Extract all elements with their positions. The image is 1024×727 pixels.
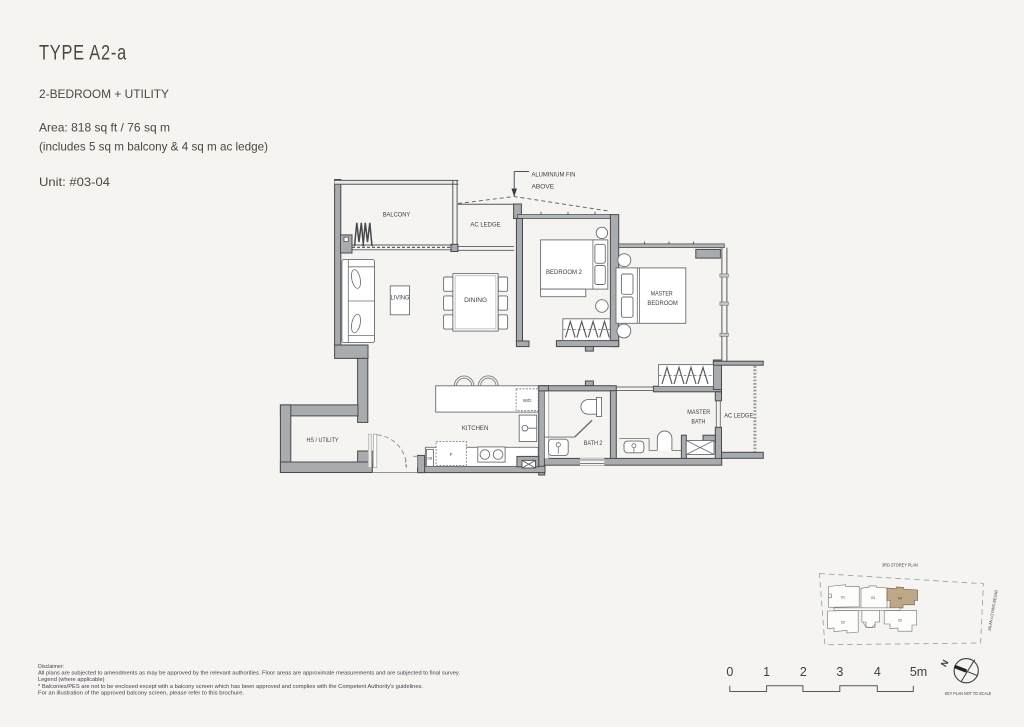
svg-text:DINING: DINING	[464, 297, 487, 304]
svg-text:AC LEDGE: AC LEDGE	[470, 222, 501, 229]
svg-text:Disclaimer:: Disclaimer:	[38, 664, 64, 670]
svg-text:BALCONY: BALCONY	[383, 212, 411, 219]
svg-text:* Balconies/PES are not to be: * Balconies/PES are not to be enclosed e…	[38, 684, 423, 690]
svg-text:03: 03	[871, 596, 875, 600]
svg-text:MASTER: MASTER	[687, 409, 710, 416]
svg-text:1: 1	[763, 665, 770, 679]
svg-text:KITCHEN: KITCHEN	[462, 425, 489, 432]
svg-text:ALUMINIUM FIN: ALUMINIUM FIN	[532, 172, 576, 179]
svg-text:AC LEDGE: AC LEDGE	[724, 413, 753, 420]
svg-text:Unit: #03-04: Unit: #03-04	[39, 176, 111, 189]
svg-text:3: 3	[836, 665, 843, 679]
svg-text:4: 4	[874, 665, 881, 679]
svg-text:Legend (where applicable): Legend (where applicable)	[38, 677, 105, 683]
svg-text:5m: 5m	[910, 665, 927, 679]
svg-text:BEDROOM 2: BEDROOM 2	[546, 269, 582, 276]
svg-text:MASTER: MASTER	[651, 291, 673, 298]
svg-text:BATH 2: BATH 2	[584, 440, 603, 447]
svg-text:F: F	[450, 452, 453, 457]
svg-text:All plans are subjected to ame: All plans are subjected to amendments as…	[38, 671, 460, 677]
svg-text:BATH: BATH	[691, 419, 705, 426]
svg-text:KEY PLAN NOT TO SCALE: KEY PLAN NOT TO SCALE	[945, 691, 992, 696]
svg-text:Area: 818 sq ft / 76 sq m: Area: 818 sq ft / 76 sq m	[39, 122, 170, 135]
svg-text:For an illustration of the app: For an illustration of the approved balc…	[38, 690, 244, 696]
svg-text:0: 0	[726, 665, 733, 679]
svg-text:02: 02	[898, 619, 902, 623]
svg-text:BEDROOM: BEDROOM	[647, 300, 677, 307]
svg-text:2: 2	[800, 665, 807, 679]
svg-text:TYPE A2-a: TYPE A2-a	[39, 42, 127, 65]
svg-text:2-BEDROOM + UTILITY: 2-BEDROOM + UTILITY	[39, 87, 169, 101]
svg-text:(includes 5 sq m balcony & 4 s: (includes 5 sq m balcony & 4 sq m ac led…	[39, 141, 268, 154]
svg-text:HS / UTILITY: HS / UTILITY	[307, 437, 339, 444]
svg-text:DB: DB	[428, 457, 433, 461]
svg-text:04: 04	[898, 597, 902, 601]
svg-text:W/D: W/D	[523, 398, 532, 403]
svg-text:02: 02	[841, 621, 845, 625]
svg-text:01: 01	[841, 596, 845, 600]
svg-text:LIVING: LIVING	[391, 295, 410, 302]
svg-text:ABOVE: ABOVE	[532, 184, 555, 191]
svg-text:3RD STOREY PLAN: 3RD STOREY PLAN	[882, 563, 918, 568]
